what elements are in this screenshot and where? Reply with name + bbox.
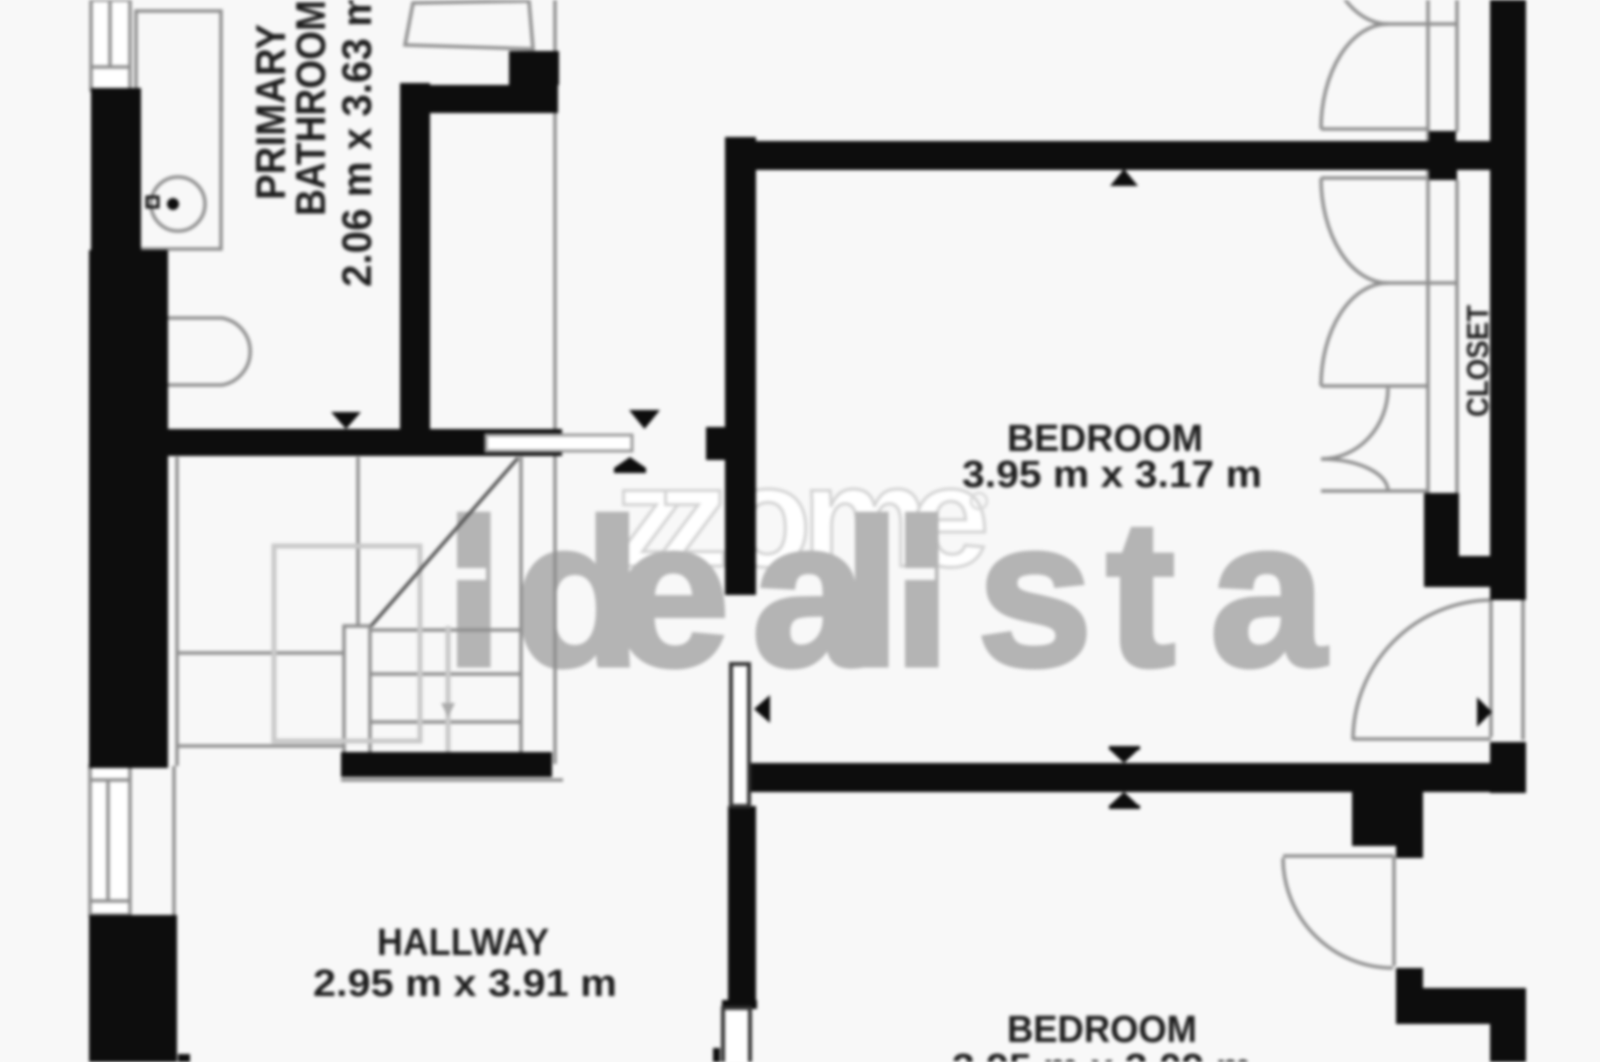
svg-text:HALLWAY: HALLWAY xyxy=(377,922,549,964)
svg-text:l: l xyxy=(893,478,951,710)
svg-text:e: e xyxy=(614,478,730,710)
svg-text:3.95 m x 3.17 m: 3.95 m x 3.17 m xyxy=(962,454,1262,496)
svg-text:2.95 m x 3.91 m: 2.95 m x 3.91 m xyxy=(313,963,617,1005)
svg-text:BATHROOM: BATHROOM xyxy=(287,0,334,216)
svg-text:2.06 m x 3.63 m: 2.06 m x 3.63 m xyxy=(333,0,380,287)
svg-text:t: t xyxy=(1106,478,1175,710)
svg-text:s: s xyxy=(977,478,1093,710)
svg-text:a: a xyxy=(1210,478,1327,710)
svg-text:CLOSET: CLOSET xyxy=(1460,305,1495,417)
svg-text:BEDROOM: BEDROOM xyxy=(1007,1009,1197,1051)
svg-text:3.95 m x 3.09 m: 3.95 m x 3.09 m xyxy=(952,1047,1252,1062)
